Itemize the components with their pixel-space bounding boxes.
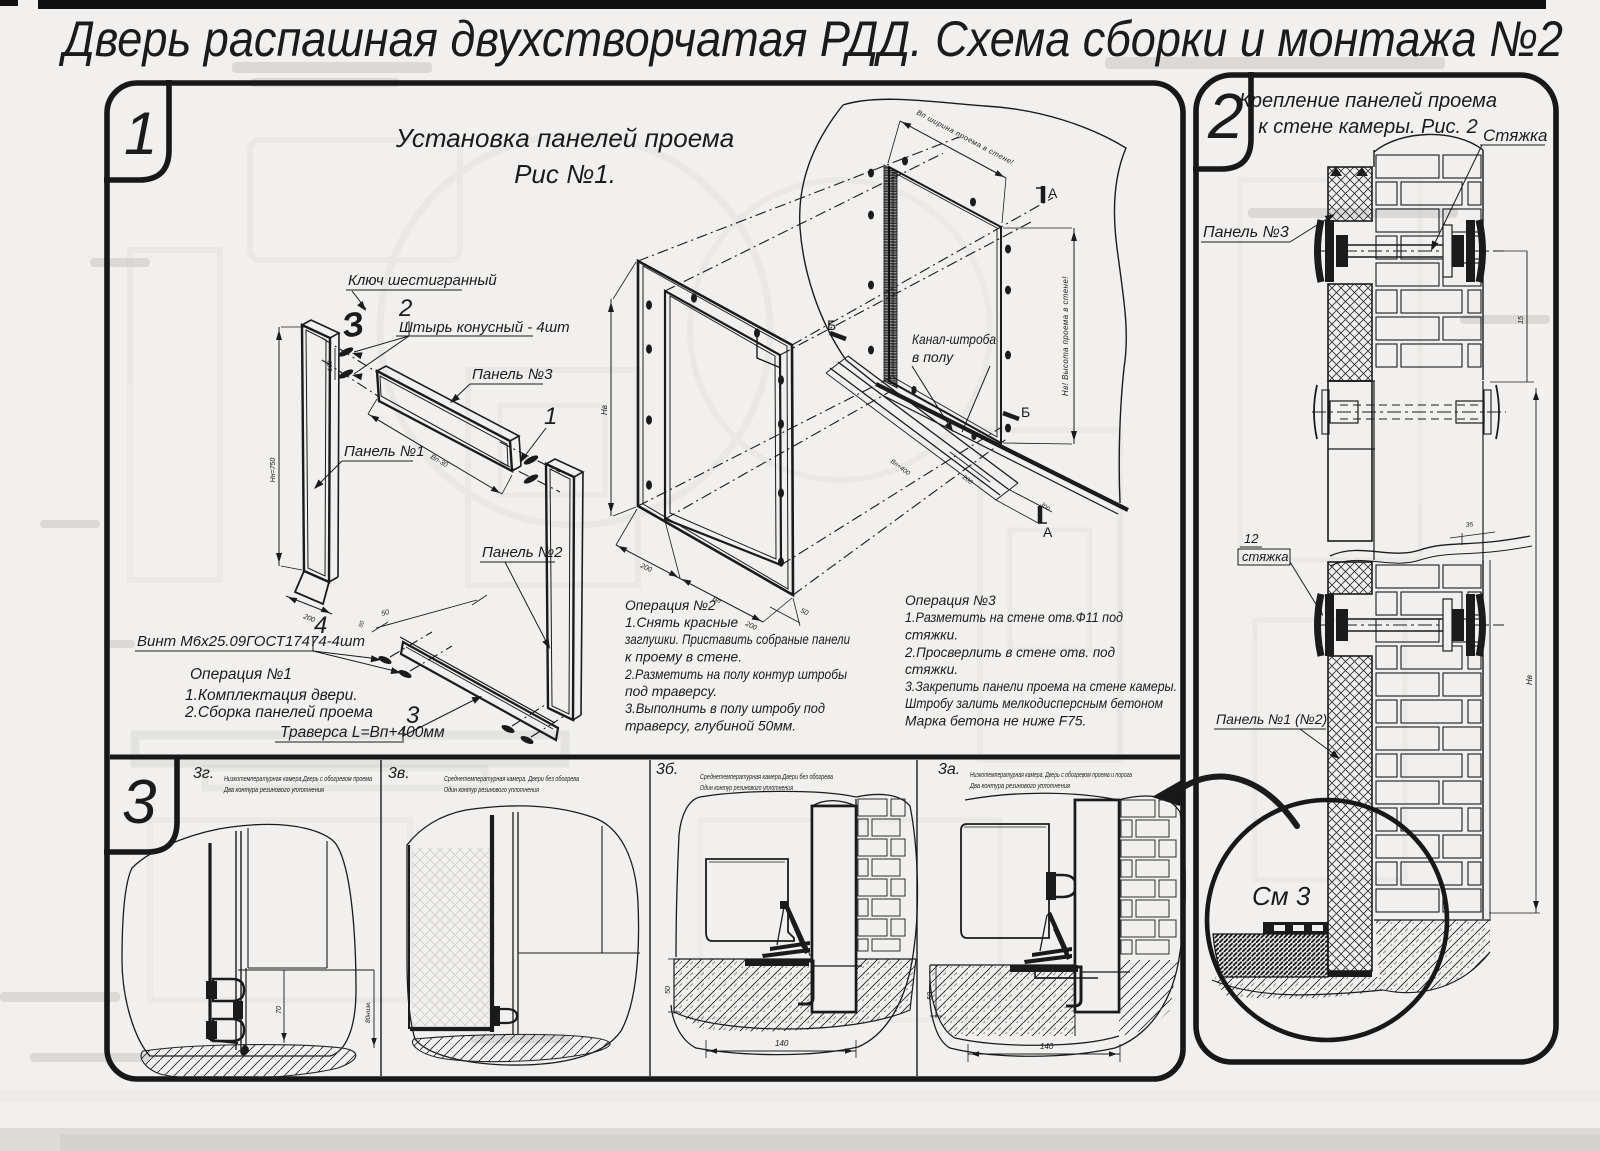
svg-text:Траверса L=Вп+400мм: Траверса L=Вп+400мм (280, 724, 445, 741)
svg-text:1.Снять красные: 1.Снять красные (625, 615, 739, 630)
svg-text:1: 1 (544, 403, 557, 430)
svg-text:Нв! Высота проема в стене!: Нв! Высота проема в стене! (1061, 276, 1070, 396)
svg-text:2.Сборка панелей проема: 2.Сборка панелей проема (184, 704, 373, 721)
svg-text:Б: Б (827, 317, 836, 333)
svg-text:4: 4 (314, 612, 327, 639)
svg-text:стяжки.: стяжки. (905, 662, 958, 677)
svg-text:Среднетемпературная камера. Дв: Среднетемпературная камера. Двери без об… (444, 774, 579, 783)
svg-text:15: 15 (1518, 316, 1525, 324)
svg-text:стяжки.: стяжки. (905, 627, 958, 642)
svg-text:Два контура резинового уплотне: Два контура резинового уплотнения (223, 785, 324, 794)
svg-text:3б.: 3б. (656, 761, 678, 778)
svg-text:Операция №3: Операция №3 (905, 593, 996, 608)
svg-text:в полу: в полу (912, 349, 954, 365)
svg-text:3а.: 3а. (938, 761, 960, 778)
svg-text:12: 12 (1244, 531, 1259, 546)
svg-text:Дверь распашная двухстворчатая: Дверь распашная двухстворчатая РДД. Схем… (58, 11, 1563, 67)
svg-text:2.Просверлить в стене отв. п: 2.Просверлить в стене отв. под (904, 645, 1115, 660)
svg-text:заглушки. Приставить собраные: заглушки. Приставить собраные панели (624, 632, 850, 647)
svg-text:Установка панелей проема: Установка панелей проема (395, 123, 734, 153)
svg-text:3: 3 (122, 768, 156, 837)
svg-text:Нв: Нв (600, 405, 609, 415)
svg-text:50: 50 (927, 992, 934, 1000)
svg-text:См 3: См 3 (1252, 881, 1311, 911)
svg-text:Панель №3: Панель №3 (1203, 224, 1289, 241)
svg-text:А: А (1043, 524, 1053, 540)
svg-text:траверсу, глубиной 50мм.: траверсу, глубиной 50мм. (625, 718, 796, 733)
svg-text:3в.: 3в. (388, 765, 410, 782)
svg-text:1.Комплектация двери.: 1.Комплектация двери. (185, 687, 358, 704)
svg-text:Канал-штроба: Канал-штроба (912, 331, 996, 347)
svg-text:Винт М6х25.09ГОСТ17474-4шт: Винт М6х25.09ГОСТ17474-4шт (137, 633, 365, 650)
svg-text:3.Закрепить панели проема на с: 3.Закрепить панели проема на стене камер… (905, 679, 1177, 694)
svg-text:Штырь конусный - 4шт: Штырь конусный - 4шт (399, 319, 570, 336)
svg-text:Операция №2: Операция №2 (625, 598, 716, 613)
svg-text:1.Разметить на стене отв.Ф11 п: 1.Разметить на стене отв.Ф11 под (905, 610, 1123, 625)
svg-text:Операция №1: Операция №1 (190, 666, 292, 683)
svg-text:Панель №1 (№2): Панель №1 (№2) (1216, 711, 1327, 727)
svg-text:50: 50 (665, 986, 672, 994)
svg-text:3.Выполнить в полу штробу под: 3.Выполнить в полу штробу под (625, 701, 825, 716)
svg-text:Два контура резинового уплотне: Два контура резинового уплотнения (969, 781, 1070, 790)
svg-text:под траверсу.: под траверсу. (625, 684, 717, 699)
svg-text:стяжка: стяжка (1242, 549, 1288, 564)
svg-text:Среднетемпературная камера.Две: Среднетемпературная камера.Двери без обо… (700, 772, 833, 781)
svg-text:Крепление панелей проема: Крепление панелей проема (1239, 90, 1497, 112)
svg-text:70: 70 (276, 1006, 283, 1014)
svg-text:35: 35 (1466, 521, 1474, 529)
svg-text:140: 140 (775, 1039, 789, 1048)
svg-text:Один контур резинового уплотне: Один контур резинового уплотнения (444, 785, 539, 794)
svg-text:Б: Б (1021, 404, 1030, 420)
svg-text:Низкотемпературная камера. Две: Низкотемпературная камера. Дверь с обогр… (970, 770, 1132, 779)
svg-text:к проему в стене.: к проему в стене. (625, 650, 742, 665)
svg-text:Штробу залить мелкодисперсным: Штробу залить мелкодисперсным бетоном (905, 696, 1163, 711)
svg-text:Нв: Нв (1525, 675, 1534, 685)
svg-text:140: 140 (1040, 1042, 1054, 1051)
svg-text:2: 2 (398, 295, 412, 322)
svg-text:Панель №1: Панель №1 (344, 443, 424, 460)
svg-text:Стяжка: Стяжка (1483, 126, 1548, 145)
svg-text:Нн=750: Нн=750 (270, 458, 277, 483)
svg-text:Низкотемпературная камера.Двер: Низкотемпературная камера.Дверь с обогре… (224, 774, 372, 783)
svg-text:Панель №2: Панель №2 (482, 544, 563, 561)
svg-text:Панель №3: Панель №3 (472, 366, 553, 383)
svg-text:Ключ шестигранный: Ключ шестигранный (348, 272, 497, 289)
svg-text:2.Разметить на полу контур штр: 2.Разметить на полу контур штробы (624, 667, 847, 682)
svg-text:1: 1 (124, 100, 157, 167)
svg-text:А: А (1048, 185, 1058, 201)
svg-text:Рис №1.: Рис №1. (514, 159, 616, 189)
svg-text:80низк.: 80низк. (365, 1001, 372, 1024)
svg-text:Марка бетона не ниже F75.: Марка бетона не ниже F75. (905, 713, 1086, 728)
svg-text:Один контур резинового уплотне: Один контур резинового уплотнения (700, 783, 793, 792)
svg-text:3г.: 3г. (193, 765, 214, 782)
